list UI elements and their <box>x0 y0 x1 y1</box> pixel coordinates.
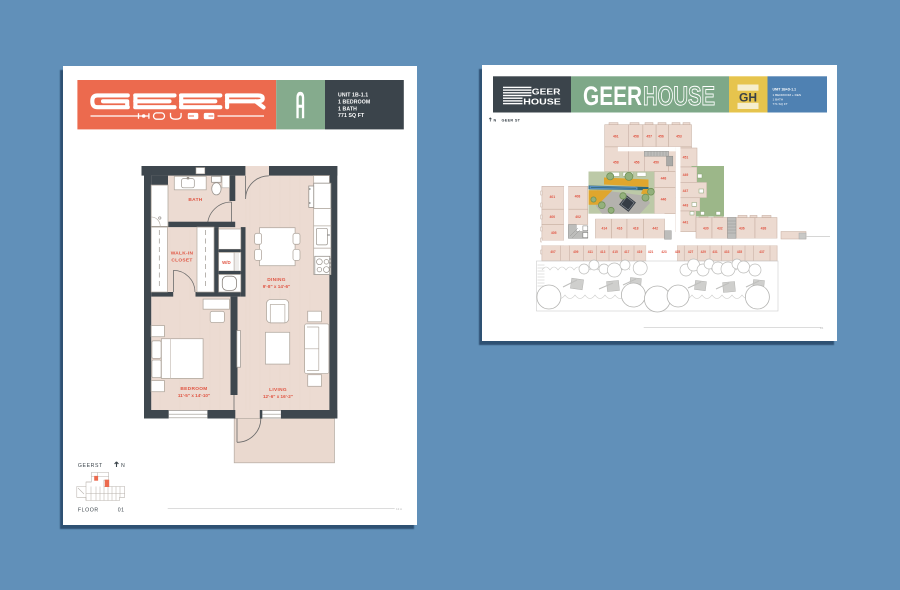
svg-text:461: 461 <box>613 134 619 138</box>
svg-text:1 BEDROOM + DEN: 1 BEDROOM + DEN <box>773 93 802 97</box>
svg-text:448: 448 <box>661 176 667 180</box>
svg-text:416: 416 <box>617 227 623 231</box>
svg-text:CLOSET: CLOSET <box>171 258 192 264</box>
svg-text:446: 446 <box>661 198 667 202</box>
svg-text:449: 449 <box>683 173 689 177</box>
svg-text:458: 458 <box>613 161 619 165</box>
svg-text:13 A: 13 A <box>396 507 402 511</box>
svg-text:456: 456 <box>634 161 640 165</box>
svg-text:FLOOR: FLOOR <box>78 508 99 514</box>
svg-text:447: 447 <box>683 189 689 193</box>
svg-text:HOUSE: HOUSE <box>643 81 715 111</box>
svg-text:432: 432 <box>717 227 723 231</box>
svg-text:431: 431 <box>712 250 718 254</box>
svg-text:407: 407 <box>550 250 556 254</box>
svg-text:451: 451 <box>683 156 689 160</box>
svg-text:425: 425 <box>675 250 681 254</box>
svg-text:11'-5" x 14'-10": 11'-5" x 14'-10" <box>178 393 210 398</box>
svg-text:458: 458 <box>633 134 639 138</box>
svg-text:LIVING: LIVING <box>269 387 287 393</box>
svg-text:423: 423 <box>661 250 667 254</box>
svg-text:441: 441 <box>683 221 689 225</box>
svg-text:N: N <box>494 119 497 123</box>
svg-text:GH: GH <box>739 90 757 104</box>
svg-text:408: 408 <box>575 195 581 199</box>
svg-text:442: 442 <box>652 227 658 231</box>
svg-text:450: 450 <box>653 161 659 165</box>
svg-text:417: 417 <box>624 250 630 254</box>
svg-text:12'-6" x 16'-2": 12'-6" x 16'-2" <box>263 394 293 399</box>
svg-text:457: 457 <box>646 134 652 138</box>
svg-text:W/D: W/D <box>222 260 231 265</box>
svg-text:771 SQ FT: 771 SQ FT <box>338 113 365 119</box>
svg-text:N: N <box>121 463 125 469</box>
svg-text:437: 437 <box>759 250 765 254</box>
svg-text:413: 413 <box>600 250 606 254</box>
svg-text:411: 411 <box>588 250 593 254</box>
svg-text:453: 453 <box>676 134 682 138</box>
svg-text:1 BATH: 1 BATH <box>338 106 357 112</box>
svg-text:400: 400 <box>549 215 555 219</box>
svg-text:402: 402 <box>575 215 581 219</box>
svg-text:GEER: GEER <box>583 81 642 111</box>
svg-text:UNIT 1B-1.1: UNIT 1B-1.1 <box>338 92 368 98</box>
svg-text:WALK-IN: WALK-IN <box>171 251 194 257</box>
svg-text:438: 438 <box>761 227 767 231</box>
svg-text:DINING: DINING <box>267 277 286 283</box>
svg-text:9'-8" x 14'-6": 9'-8" x 14'-6" <box>263 284 290 289</box>
svg-text:771 SQ FT: 771 SQ FT <box>773 102 788 106</box>
svg-text:GEER: GEER <box>532 87 562 97</box>
svg-text:1 BEDROOM: 1 BEDROOM <box>338 99 370 105</box>
svg-text:BATH: BATH <box>188 197 202 203</box>
svg-text:UNIT 1B+D-1.1: UNIT 1B+D-1.1 <box>773 88 797 92</box>
svg-text:418: 418 <box>633 227 639 231</box>
svg-text:421: 421 <box>648 250 654 254</box>
svg-text:427: 427 <box>688 250 694 254</box>
svg-text:BEDROOM: BEDROOM <box>180 386 207 392</box>
svg-text:419: 419 <box>637 250 643 254</box>
svg-text:401: 401 <box>549 195 555 199</box>
svg-text:HOUSE: HOUSE <box>523 96 561 106</box>
svg-text:415: 415 <box>612 250 618 254</box>
svg-text:414: 414 <box>601 227 607 231</box>
svg-text:436: 436 <box>739 227 745 231</box>
svg-text:14: 14 <box>820 326 824 330</box>
svg-text:01: 01 <box>118 508 125 514</box>
svg-text:433: 433 <box>724 250 730 254</box>
svg-text:429: 429 <box>701 250 707 254</box>
svg-text:435: 435 <box>737 250 743 254</box>
svg-text:GEERST: GEERST <box>78 463 103 469</box>
svg-text:443: 443 <box>683 203 689 207</box>
svg-text:456: 456 <box>658 134 664 138</box>
svg-text:GEER ST: GEER ST <box>502 119 521 123</box>
svg-text:1 BATH: 1 BATH <box>773 97 784 101</box>
svg-text:409: 409 <box>573 250 579 254</box>
svg-text:405: 405 <box>551 231 557 235</box>
svg-text:430: 430 <box>703 227 709 231</box>
